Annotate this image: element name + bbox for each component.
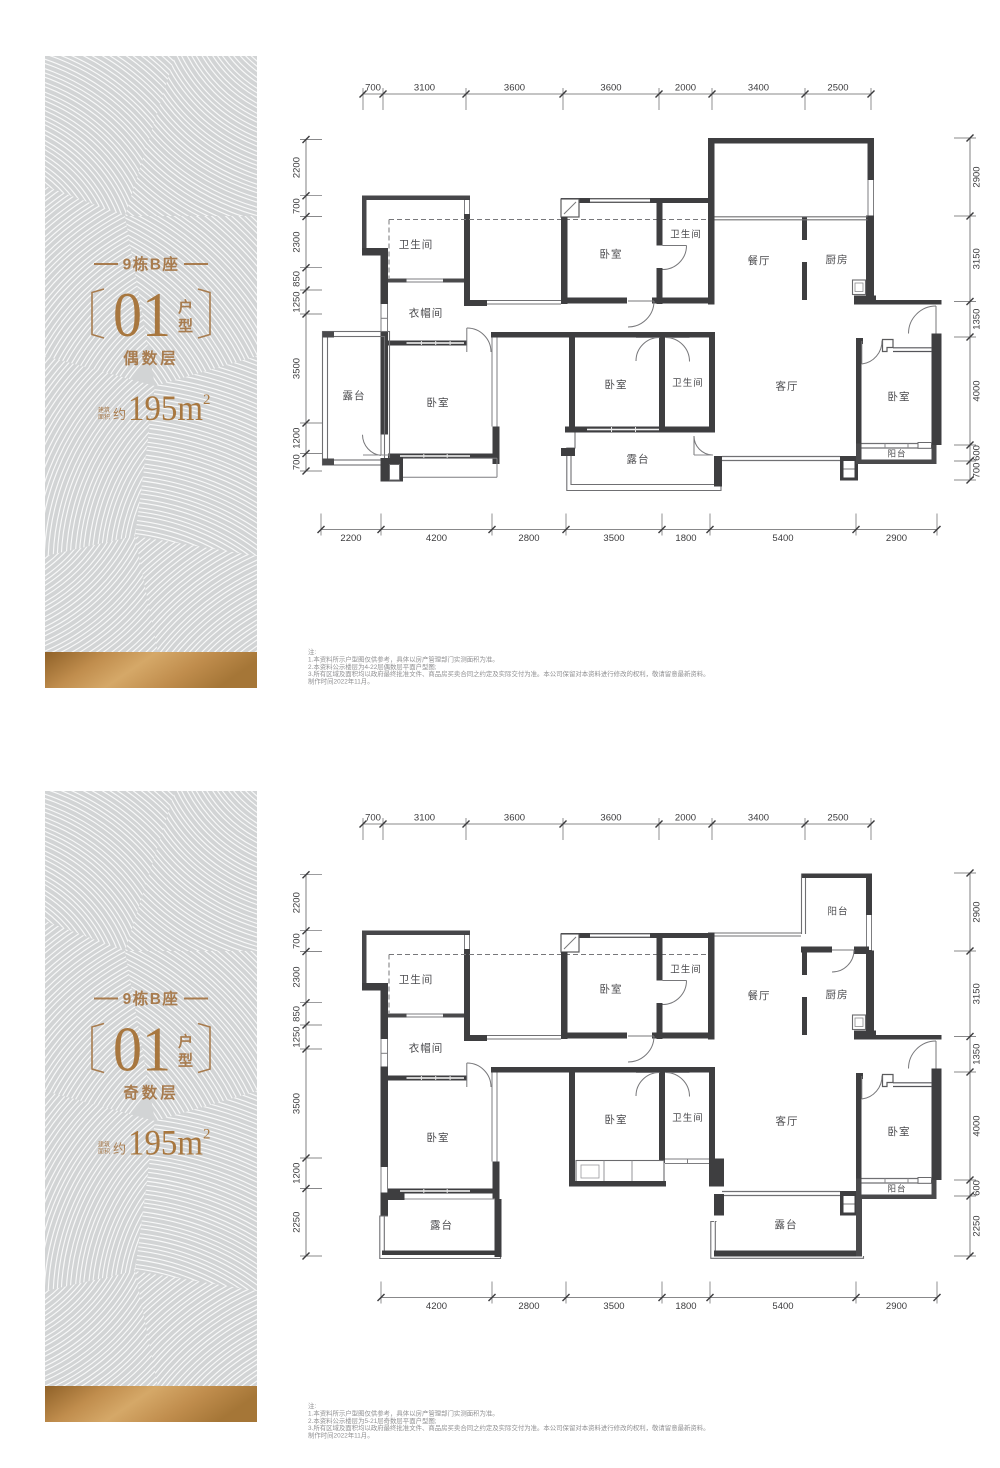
svg-text:露台: 露台 [627, 452, 650, 465]
svg-text:面积: 面积 [98, 413, 110, 421]
svg-text:卫生间: 卫生间 [670, 228, 702, 240]
svg-text:195m: 195m [128, 388, 203, 428]
svg-text:制作时间2022年11月。: 制作时间2022年11月。 [308, 677, 374, 686]
svg-text:01: 01 [113, 279, 171, 350]
svg-text:客厅: 客厅 [776, 379, 799, 392]
svg-text:卫生间: 卫生间 [399, 973, 434, 986]
svg-text:约: 约 [113, 407, 126, 422]
svg-text:700: 700 [365, 813, 381, 824]
svg-text:户: 户 [178, 298, 193, 316]
svg-text:卧室: 卧室 [600, 247, 623, 260]
svg-text:2500: 2500 [827, 83, 848, 94]
svg-text:2200: 2200 [292, 157, 303, 178]
svg-text:3600: 3600 [504, 83, 525, 94]
svg-text:3400: 3400 [748, 83, 769, 94]
svg-text:2900: 2900 [886, 1301, 907, 1312]
svg-text:4000: 4000 [972, 380, 983, 401]
svg-text:注:: 注: [308, 1401, 316, 1410]
svg-text:阳台: 阳台 [887, 449, 906, 459]
svg-text:600: 600 [972, 445, 983, 461]
svg-text:850: 850 [292, 271, 303, 287]
svg-text:2800: 2800 [518, 533, 539, 544]
svg-text:1.本资料所示户型图仅供参考，具体以房产管理部门实测面积为准: 1.本资料所示户型图仅供参考，具体以房产管理部门实测面积为准。 [308, 1408, 499, 1417]
svg-text:01: 01 [113, 1014, 171, 1085]
svg-text:约: 约 [113, 1142, 126, 1157]
svg-text:700: 700 [292, 198, 303, 214]
svg-text:型: 型 [178, 317, 193, 335]
svg-text:2000: 2000 [675, 813, 696, 824]
svg-text:卧室: 卧室 [888, 1125, 911, 1138]
svg-text:1250: 1250 [292, 291, 303, 312]
svg-text:3.所有区域及面积均以政府最终批准文件、商品房买卖合同之约定: 3.所有区域及面积均以政府最终批准文件、商品房买卖合同之约定及实际交付为准。本公… [308, 1423, 710, 1432]
svg-text:3500: 3500 [603, 1301, 624, 1312]
svg-text:850: 850 [292, 1006, 303, 1022]
svg-text:制作时间2022年11月。: 制作时间2022年11月。 [308, 1431, 374, 1440]
svg-text:型: 型 [178, 1052, 193, 1070]
svg-text:3600: 3600 [504, 813, 525, 824]
svg-text:3.所有区域及面积均以政府最终批准文件、商品房买卖合同之约定: 3.所有区域及面积均以政府最终批准文件、商品房买卖合同之约定及实际交付为准。本公… [308, 669, 710, 678]
svg-text:4200: 4200 [426, 533, 447, 544]
svg-text:2.本资料公示楼层为5-21层奇数层平面户型图;: 2.本资料公示楼层为5-21层奇数层平面户型图; [308, 1416, 437, 1425]
svg-text:2900: 2900 [972, 166, 983, 187]
svg-text:阳台: 阳台 [887, 1184, 906, 1194]
svg-text:2300: 2300 [292, 967, 303, 988]
svg-text:露台: 露台 [775, 1218, 798, 1231]
svg-text:3100: 3100 [414, 813, 435, 824]
svg-text:卧室: 卧室 [605, 1113, 628, 1126]
svg-text:5400: 5400 [772, 533, 793, 544]
svg-text:1250: 1250 [292, 1026, 303, 1047]
svg-text:厨房: 厨房 [826, 253, 849, 266]
svg-text:3600: 3600 [600, 813, 621, 824]
svg-text:奇数层: 奇数层 [123, 1083, 179, 1102]
svg-text:3500: 3500 [292, 1093, 303, 1114]
svg-text:195m: 195m [128, 1123, 203, 1163]
svg-text:2900: 2900 [972, 901, 983, 922]
svg-text:卧室: 卧室 [888, 390, 911, 403]
svg-text:2500: 2500 [827, 813, 848, 824]
svg-text:卫生间: 卫生间 [399, 238, 434, 251]
svg-text:卫生间: 卫生间 [670, 963, 702, 975]
svg-text:1800: 1800 [675, 533, 696, 544]
svg-text:3500: 3500 [603, 533, 624, 544]
svg-text:露台: 露台 [343, 389, 366, 402]
svg-text:2200: 2200 [292, 892, 303, 913]
svg-text:户: 户 [178, 1033, 193, 1051]
svg-text:衣帽间: 衣帽间 [409, 1041, 444, 1054]
svg-text:700: 700 [365, 83, 381, 94]
svg-text:客厅: 客厅 [776, 1114, 799, 1127]
svg-text:5400: 5400 [772, 1301, 793, 1312]
svg-text:厨房: 厨房 [826, 988, 849, 1001]
svg-text:2: 2 [203, 1127, 211, 1143]
svg-text:2800: 2800 [518, 1301, 539, 1312]
svg-text:1200: 1200 [292, 1163, 303, 1184]
svg-text:2000: 2000 [675, 83, 696, 94]
svg-text:9栋B座: 9栋B座 [123, 255, 180, 274]
svg-text:卧室: 卧室 [427, 396, 450, 409]
svg-text:2250: 2250 [292, 1212, 303, 1233]
svg-text:1350: 1350 [972, 309, 983, 330]
svg-text:1800: 1800 [675, 1301, 696, 1312]
svg-text:注:: 注: [308, 647, 316, 656]
svg-text:建筑: 建筑 [98, 406, 110, 414]
svg-text:建筑: 建筑 [98, 1141, 110, 1149]
svg-text:1200: 1200 [292, 428, 303, 449]
svg-text:1350: 1350 [972, 1044, 983, 1065]
svg-text:3150: 3150 [972, 248, 983, 269]
svg-text:餐厅: 餐厅 [748, 989, 771, 1002]
svg-text:4200: 4200 [426, 1301, 447, 1312]
svg-text:2: 2 [203, 392, 211, 408]
svg-text:3500: 3500 [292, 358, 303, 379]
svg-text:偶数层: 偶数层 [123, 349, 179, 368]
svg-text:2300: 2300 [292, 232, 303, 253]
svg-text:4000: 4000 [972, 1115, 983, 1136]
svg-text:卧室: 卧室 [427, 1131, 450, 1144]
svg-text:1.本资料所示户型图仅供参考，具体以房产管理部门实测面积为准: 1.本资料所示户型图仅供参考，具体以房产管理部门实测面积为准。 [308, 654, 499, 663]
svg-text:3400: 3400 [748, 813, 769, 824]
svg-text:衣帽间: 衣帽间 [409, 306, 444, 319]
svg-text:600: 600 [972, 1180, 983, 1196]
svg-text:700: 700 [292, 933, 303, 949]
svg-text:卧室: 卧室 [605, 378, 628, 391]
svg-text:卫生间: 卫生间 [672, 377, 704, 389]
svg-text:面积: 面积 [98, 1148, 110, 1156]
svg-text:3150: 3150 [972, 983, 983, 1004]
svg-text:餐厅: 餐厅 [748, 254, 771, 267]
svg-text:2.本资料公示楼层为4-22层偶数层平面户型图;: 2.本资料公示楼层为4-22层偶数层平面户型图; [308, 662, 437, 671]
svg-text:2250: 2250 [972, 1215, 983, 1236]
svg-text:露台: 露台 [430, 1218, 453, 1231]
svg-text:3600: 3600 [600, 83, 621, 94]
svg-text:2900: 2900 [886, 533, 907, 544]
svg-text:2200: 2200 [340, 533, 361, 544]
svg-text:700: 700 [972, 463, 983, 479]
svg-text:3100: 3100 [414, 83, 435, 94]
svg-text:阳台: 阳台 [827, 905, 848, 917]
svg-text:700: 700 [292, 454, 303, 470]
svg-text:卫生间: 卫生间 [672, 1112, 704, 1124]
svg-text:卧室: 卧室 [600, 982, 623, 995]
svg-text:9栋B座: 9栋B座 [123, 989, 180, 1008]
